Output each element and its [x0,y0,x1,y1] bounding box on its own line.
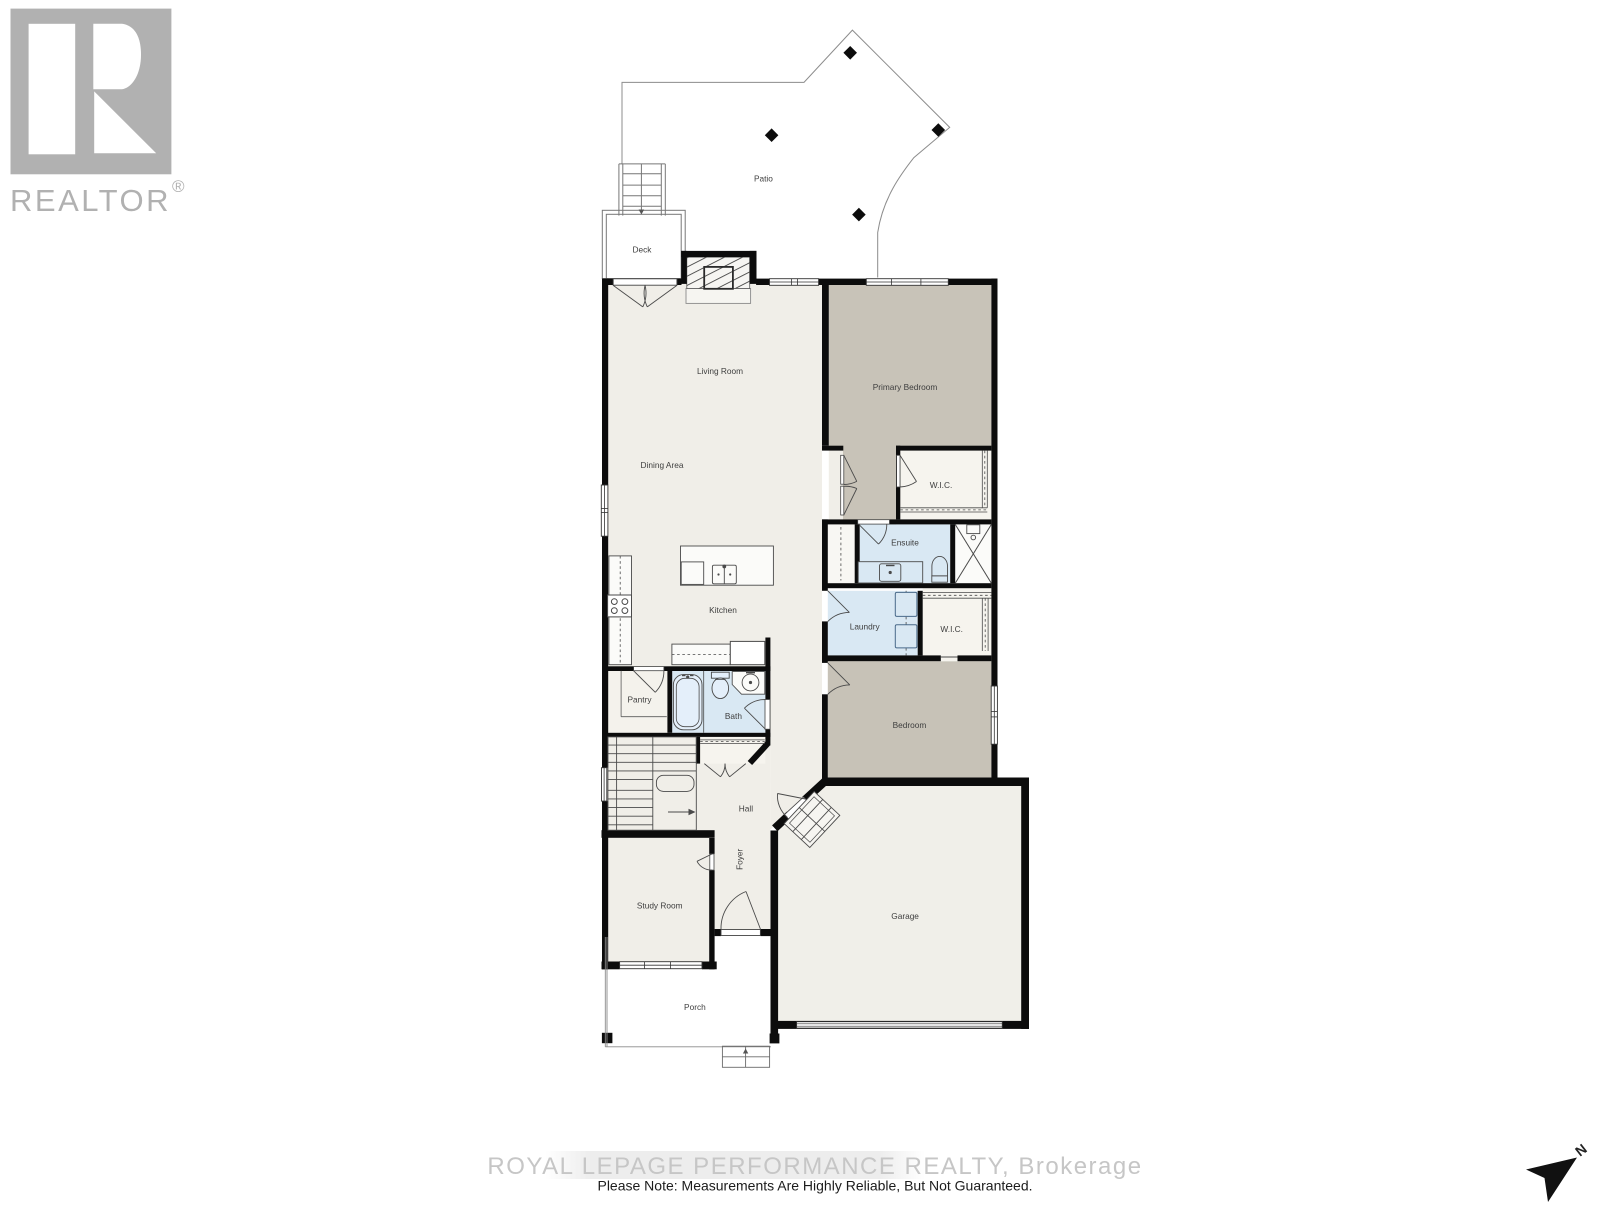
svg-text:®: ® [172,177,185,196]
svg-text:Bath: Bath [725,711,742,721]
svg-text:Pantry: Pantry [628,695,653,705]
svg-text:Bedroom: Bedroom [893,720,927,730]
svg-text:Ensuite: Ensuite [891,538,919,548]
svg-text:Dining Area: Dining Area [641,460,684,470]
svg-text:Foyer: Foyer [735,848,745,869]
svg-text:ROYAL LEPAGE PERFORMANCE REALT: ROYAL LEPAGE PERFORMANCE REALTY, Brokera… [487,1153,1142,1180]
svg-text:REALTOR: REALTOR [10,183,171,218]
svg-text:Please Note: Measurements Are: Please Note: Measurements Are Highly Rel… [597,1178,1032,1194]
svg-text:Patio: Patio [754,174,773,184]
svg-text:Primary Bedroom: Primary Bedroom [873,382,938,392]
svg-text:Porch: Porch [684,1002,706,1012]
svg-text:Living Room: Living Room [697,366,743,376]
svg-text:Hall: Hall [739,804,753,814]
svg-text:W.I.C.: W.I.C. [940,624,963,634]
svg-text:W.I.C.: W.I.C. [930,480,953,490]
svg-text:Garage: Garage [891,911,919,921]
svg-text:Deck: Deck [633,244,653,254]
svg-text:Kitchen: Kitchen [709,605,737,615]
svg-text:Laundry: Laundry [850,621,881,631]
svg-text:Study Room: Study Room [637,901,683,911]
